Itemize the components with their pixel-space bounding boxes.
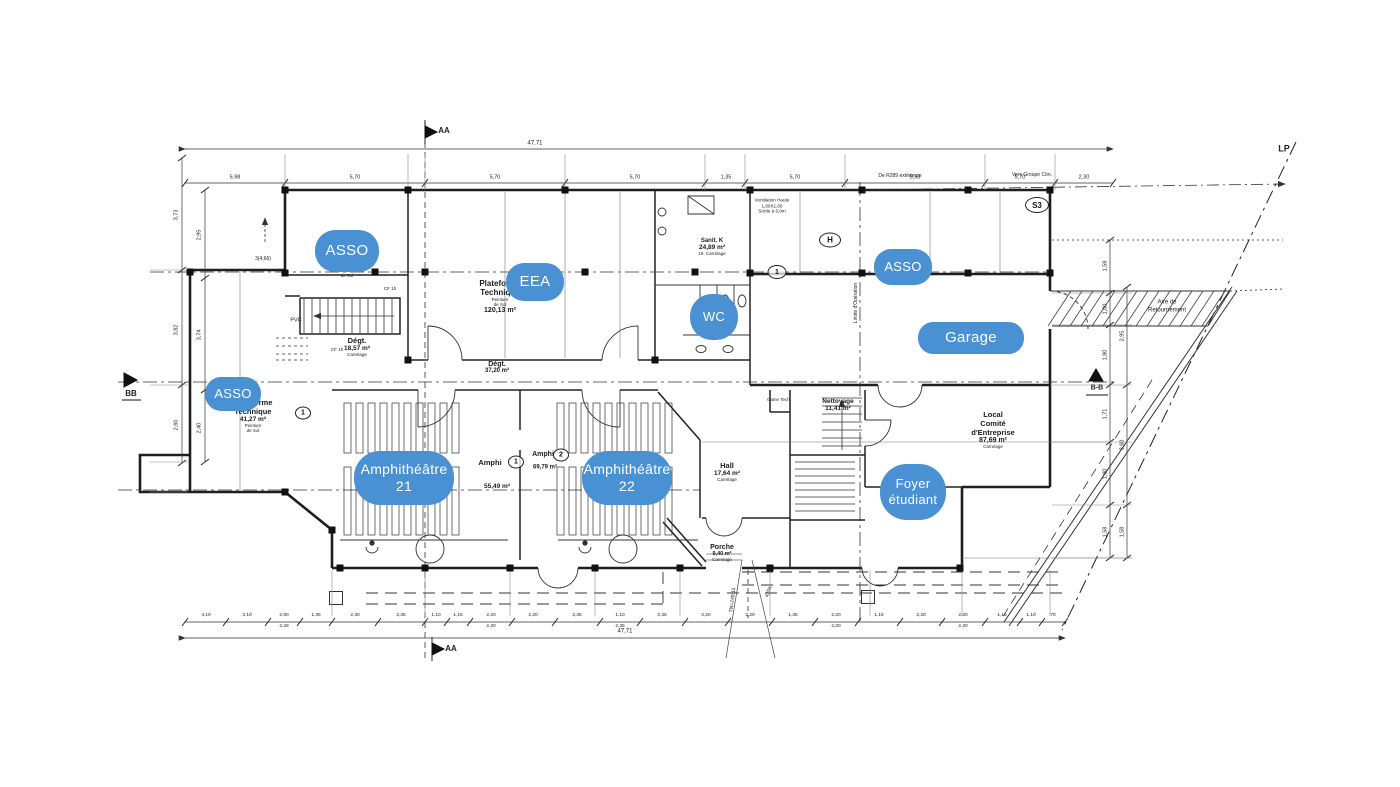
grid-badge: 1 xyxy=(295,407,311,420)
annotation: 1,10 xyxy=(431,613,440,619)
annotation: 2,90 xyxy=(279,613,288,619)
annotation: 3,73 xyxy=(174,210,181,221)
annotation: 70 xyxy=(1050,613,1055,619)
annotation: BB xyxy=(125,389,137,399)
aa-bottom-marker xyxy=(432,643,444,655)
annotation: 1,15 xyxy=(453,613,462,619)
annotation: 2,30 xyxy=(1079,175,1090,182)
annotation: 5,98 xyxy=(230,175,241,182)
grid-badge: H xyxy=(819,233,841,248)
section-markers xyxy=(122,120,1108,661)
room-label-sanit-k: Sanit. K24,89 m²19. Carrelage xyxy=(698,238,725,256)
annotation: 3,10 xyxy=(242,613,251,619)
annotation: Ventilation Haute 1,60X1,60 Sortie à 6,0… xyxy=(755,197,790,214)
annotation: LP xyxy=(1278,143,1290,154)
annotation: AA xyxy=(438,126,450,136)
overlay-asso-2[interactable]: ASSO xyxy=(874,249,932,285)
annotation: 1,58 xyxy=(1103,527,1110,538)
annotation: 3,74 xyxy=(197,330,204,341)
annotation: 2,20 xyxy=(745,613,754,619)
annotation: 3,60 xyxy=(1120,440,1127,451)
bb-right-marker xyxy=(1089,369,1103,381)
annotation: 2,28 xyxy=(279,624,288,630)
overlay-amphitheatre-22[interactable]: Amphithéâtre22 xyxy=(582,451,672,505)
overlay-foyer-etudiant[interactable]: Foyerétudiant xyxy=(880,464,946,520)
annotation: CF 1h xyxy=(384,286,397,292)
annotation: AA xyxy=(445,644,457,654)
annotation: 69,79 m² xyxy=(533,464,557,472)
annotation: 5,98 xyxy=(910,175,921,182)
grid-badge: 2 xyxy=(553,449,569,462)
annotation: B-B xyxy=(1091,385,1103,394)
annotation: 1,35 xyxy=(721,175,732,182)
annotation: 2,20 xyxy=(831,624,840,630)
floor-plan: ASSOEEAWCASSOGarageASSOAmphithéâtre21Amp… xyxy=(0,0,1400,787)
annotation: 1,35 xyxy=(788,613,797,619)
annotation: 2,20 xyxy=(486,613,495,619)
annotation: 2,20 xyxy=(831,613,840,619)
grid-badge: S3 xyxy=(1025,197,1049,213)
boundary-lines xyxy=(330,142,1297,658)
annotation: 2,35 xyxy=(657,613,666,619)
annotation: CF 1h xyxy=(331,347,344,353)
annotation: 1,10 xyxy=(615,613,624,619)
annotation: 1,00 xyxy=(1103,304,1110,315)
aa-top-marker xyxy=(425,126,437,138)
annotation: 47,71 xyxy=(527,140,542,148)
annotation: 5,70 xyxy=(630,175,641,182)
overlay-asso-3[interactable]: ASSO xyxy=(205,377,261,411)
overlay-eea[interactable]: EEA xyxy=(506,263,564,301)
room-label-degt-1857: Dégt.18,57 m²Carrelage xyxy=(344,336,370,357)
room-label-nettoyage: Nettoyage11,41 m² xyxy=(822,398,853,412)
annotation: 2,20 xyxy=(958,624,967,630)
overlay-amphitheatre-21[interactable]: Amphithéâtre21 xyxy=(354,451,454,505)
annotation: 55,49 m² xyxy=(484,483,510,491)
annotation: 1,71 xyxy=(1103,409,1110,420)
annotation: 2,95 xyxy=(1120,331,1127,342)
overlay-garage[interactable]: Garage xyxy=(918,322,1024,354)
annotation: Gaine Tech. xyxy=(767,397,791,403)
annotation: PVC xyxy=(290,318,301,325)
room-label-porche: Porche9,40 m²Carrelage xyxy=(710,544,734,562)
annotation: Limite d'Opération xyxy=(853,283,859,323)
overlay-wc[interactable]: WC xyxy=(690,294,738,340)
annotation: 3(4,66) xyxy=(255,256,271,262)
annotation: Aire de Retournement xyxy=(1148,300,1186,315)
annotation: 4,10 xyxy=(201,613,210,619)
wheelchair-icon xyxy=(366,541,591,553)
bb-left-marker xyxy=(124,373,137,387)
annotation: 2,20 xyxy=(701,613,710,619)
annotation: 1,10 xyxy=(1026,613,1035,619)
room-label-local-comite-entreprise: LocalComitéd'Entreprise87,69 m²Carrelage xyxy=(971,410,1014,449)
annotation: 5,70 xyxy=(1015,175,1026,182)
annotation: 2,35 xyxy=(572,613,581,619)
procedural-detail xyxy=(150,154,1225,616)
amphi-front xyxy=(340,535,698,563)
annotation: 5,70 xyxy=(490,175,501,182)
annotation: 2,60 xyxy=(174,420,181,431)
annotation: 2,20 xyxy=(486,624,495,630)
annotation: 2,20 xyxy=(916,613,925,619)
annotation: 1,80 xyxy=(1103,350,1110,361)
annotation: 1,58 xyxy=(1120,527,1127,538)
grid-badge: 1 xyxy=(508,456,524,469)
room-label-amphi-1: Amphi xyxy=(478,458,501,467)
annotation: de Sol xyxy=(341,273,354,279)
grid-badge: 1 xyxy=(768,265,787,279)
annotation: 1,58 xyxy=(1103,261,1110,272)
annotation: 5,70 xyxy=(790,175,801,182)
overlay-asso-1[interactable]: ASSO xyxy=(315,230,379,272)
annotation: 1,15 xyxy=(997,613,1006,619)
annotation: 2,35 xyxy=(615,624,624,630)
annotation: 2,40 xyxy=(197,423,204,434)
room-label-degt-3720: Dégt.37,20 m² xyxy=(485,361,509,374)
annotation: 1,35 xyxy=(311,613,320,619)
annotation: 1,90 xyxy=(1103,469,1110,480)
annotation: 3,82 xyxy=(174,325,181,336)
room-label-amphi-2: Amphi xyxy=(532,451,554,458)
annotation: 2,30 xyxy=(350,613,359,619)
annotation: 2,35 xyxy=(396,613,405,619)
annotation: 2,20 xyxy=(958,613,967,619)
annotation: 1,15 xyxy=(874,613,883,619)
room-label-hall: Hall17,64 m²Carrelage xyxy=(714,461,740,482)
annotation: 2,20 xyxy=(528,613,537,619)
annotation: 2,95 xyxy=(197,230,204,241)
annotation: 5,70 xyxy=(350,175,361,182)
